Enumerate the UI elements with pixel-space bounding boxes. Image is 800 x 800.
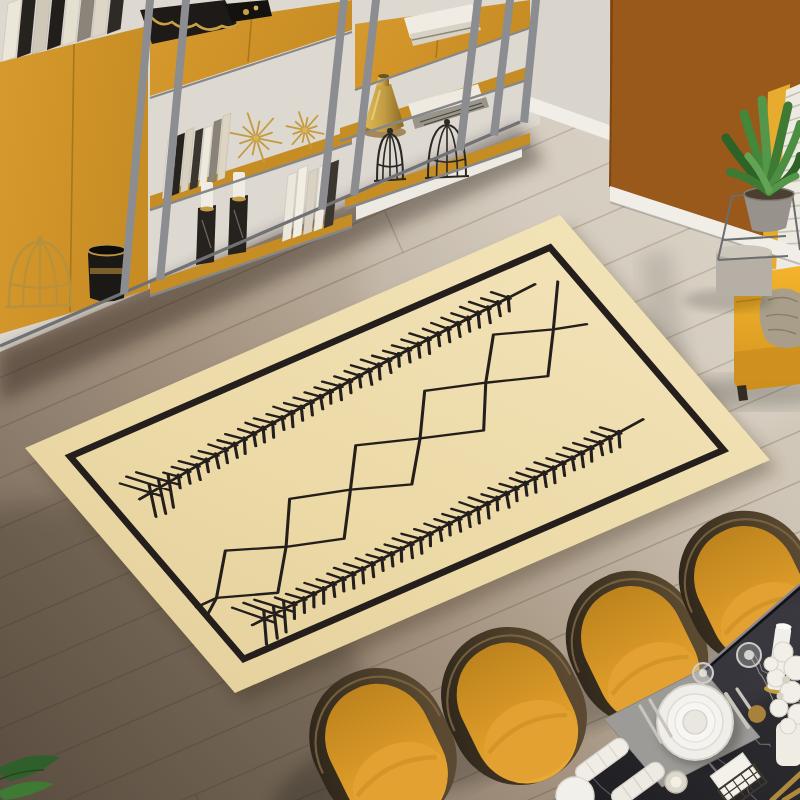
cage-knob [37, 236, 43, 242]
starburst-center [253, 135, 258, 140]
sofa-front-panel [734, 344, 800, 390]
starburst-center [302, 127, 307, 132]
cage-knob [387, 128, 393, 134]
scene-render [0, 0, 800, 800]
cage-knob [444, 119, 450, 125]
gold-candelabra-base [748, 705, 766, 723]
bowl [683, 710, 707, 734]
living-room-photo [0, 0, 800, 800]
